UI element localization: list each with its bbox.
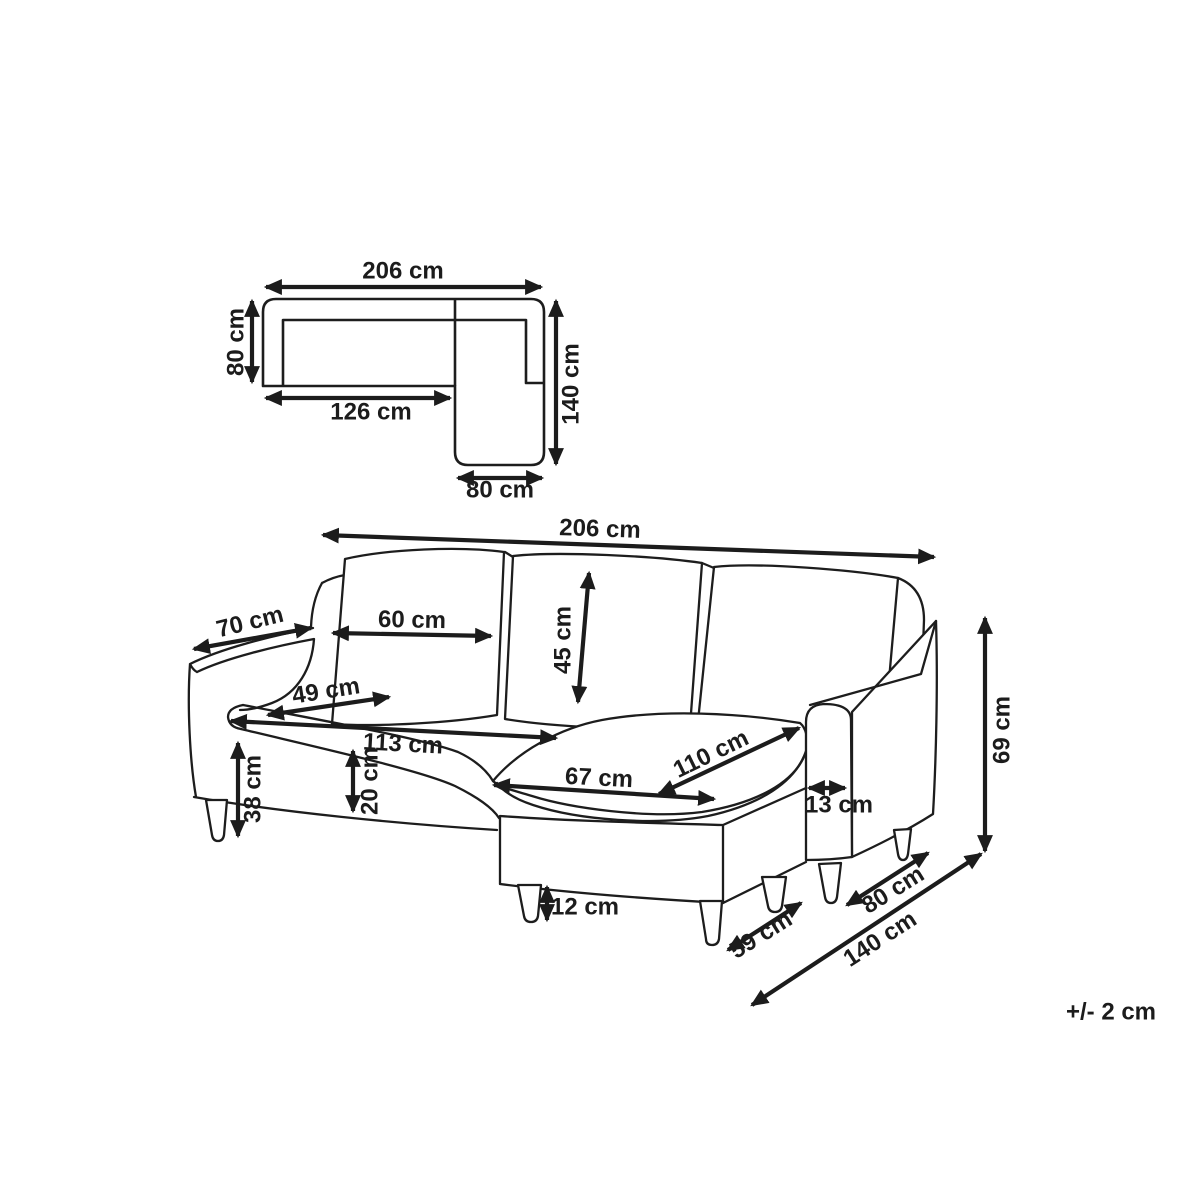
chaise-front-width-dimension: 59 cm bbox=[725, 903, 801, 964]
seat-left-cap bbox=[228, 705, 243, 729]
back-cushion-middle bbox=[505, 554, 702, 729]
armrest-height-label: 69 cm bbox=[989, 696, 1016, 764]
plan-depth-dimension: 80 cm bbox=[223, 301, 253, 382]
seat-height-dimension: 38 cm bbox=[238, 743, 267, 836]
armrest-thickness-label: 13 cm bbox=[805, 792, 873, 819]
tolerance-note: +/- 2 cm bbox=[1066, 999, 1156, 1026]
back-cushion-height-label: 45 cm bbox=[550, 606, 577, 674]
sofa-dimension-diagram: 206 cm 80 cm 126 cm 140 cm 80 cm bbox=[0, 0, 1200, 1200]
seat-height-label: 38 cm bbox=[240, 755, 267, 823]
plan-seat-width-label: 126 cm bbox=[330, 399, 411, 426]
diagram-canvas: 206 cm 80 cm 126 cm 140 cm 80 cm bbox=[0, 0, 1200, 1200]
right-arm-back-leg bbox=[894, 829, 911, 860]
plan-seat-width-dimension: 126 cm bbox=[266, 398, 450, 426]
seat-width-dimension: 113 cm bbox=[231, 721, 556, 760]
plan-view: 206 cm 80 cm 126 cm 140 cm 80 cm bbox=[223, 258, 585, 504]
right-armrest-front-face bbox=[806, 704, 852, 860]
plan-inner-line bbox=[283, 320, 544, 386]
chaise-seat-width-label: 67 cm bbox=[564, 763, 633, 794]
back-cushion-width-label: 60 cm bbox=[378, 606, 447, 634]
base-height-label: 20 cm bbox=[357, 747, 384, 815]
base-height-dimension: 20 cm bbox=[353, 747, 384, 815]
plan-total-width-label: 206 cm bbox=[362, 258, 443, 285]
plan-depth-label: 80 cm bbox=[223, 308, 250, 376]
plan-chaise-width-label: 80 cm bbox=[466, 477, 534, 504]
armrest-height-dimension: 69 cm bbox=[985, 618, 1016, 851]
right-arm-front-leg bbox=[819, 863, 841, 903]
left-arm-leg bbox=[206, 800, 227, 841]
leg-height-label: 12 cm bbox=[551, 894, 619, 921]
persp-total-width-label: 206 cm bbox=[559, 514, 641, 544]
plan-total-width-dimension: 206 cm bbox=[266, 258, 541, 288]
chaise-front-width-label: 59 cm bbox=[725, 906, 797, 965]
plan-chaise-depth-label: 140 cm bbox=[558, 343, 585, 424]
armrest-side-depth-dimension: 80 cm bbox=[847, 853, 929, 919]
plan-outline bbox=[263, 299, 544, 465]
perspective-view: 206 cm 70 cm 60 cm 45 cm 49 cm 113 cm 11… bbox=[189, 514, 1016, 1005]
plan-chaise-depth-dimension: 140 cm bbox=[556, 301, 585, 464]
chaise-front-left-leg bbox=[518, 885, 541, 922]
armrest-thickness-dimension: 13 cm bbox=[805, 788, 873, 819]
chaise-front-right-leg bbox=[700, 901, 722, 945]
plan-chaise-width-dimension: 80 cm bbox=[458, 477, 542, 504]
